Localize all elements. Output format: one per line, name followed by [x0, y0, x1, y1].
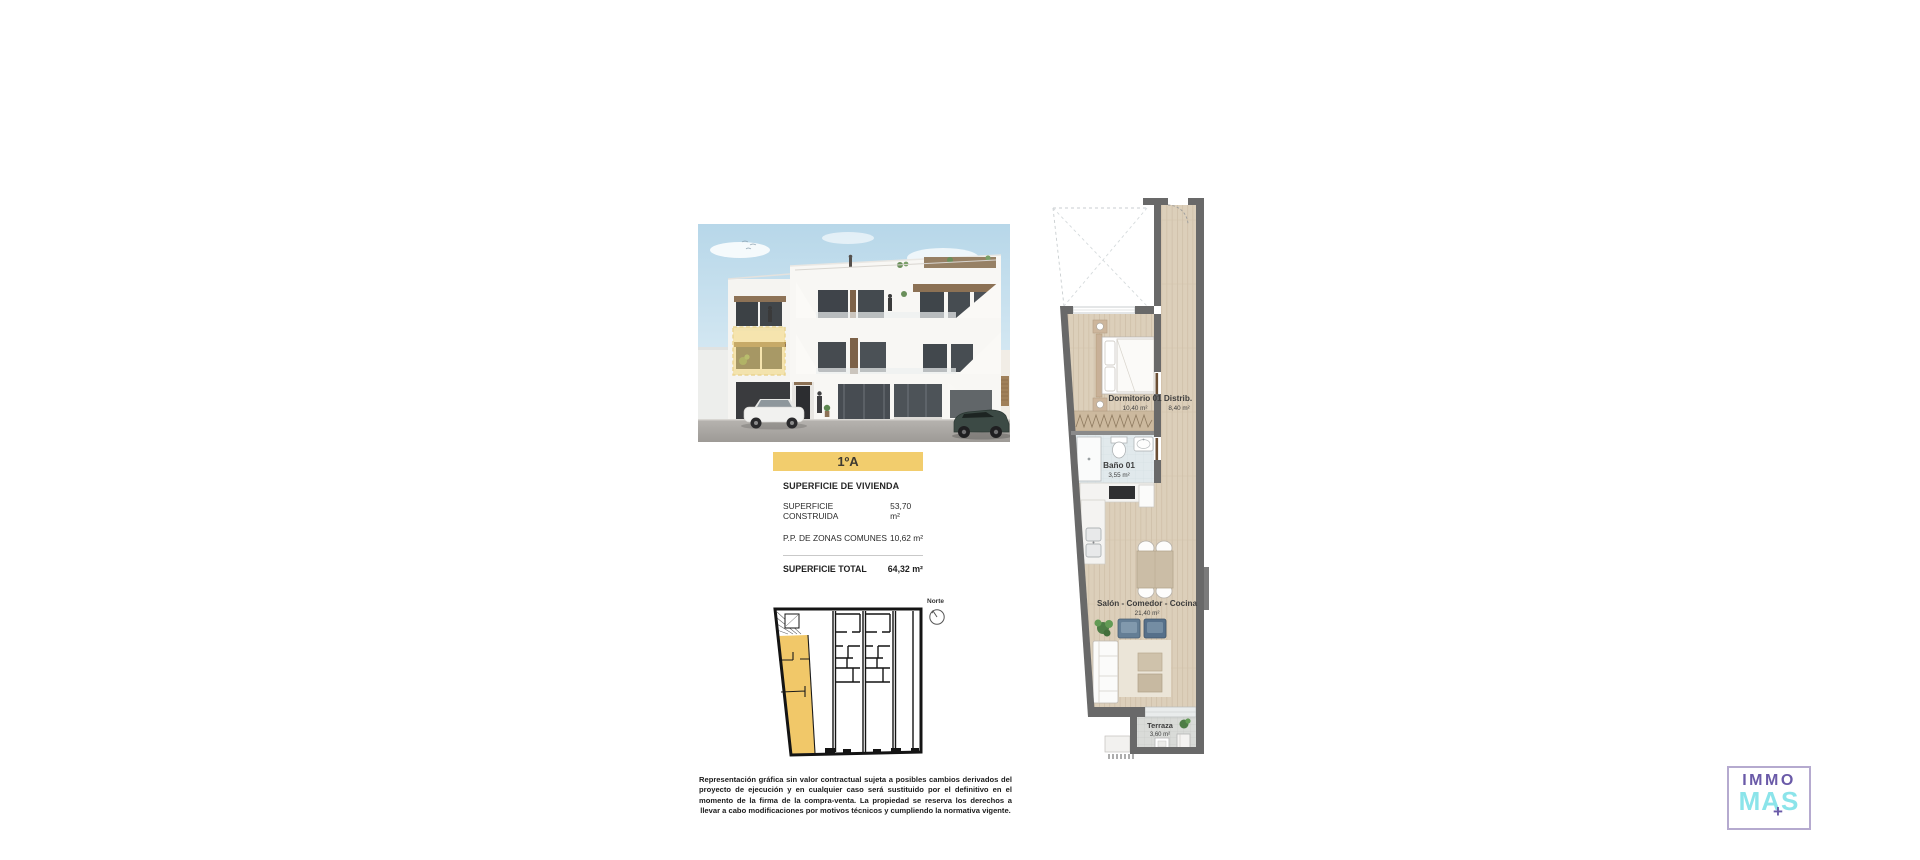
room-label: Distrib.: [1164, 394, 1192, 403]
surface-row-comunes: P.P. DE ZONAS COMUNES 10,62 m²: [783, 533, 923, 543]
surface-row-label: P.P. DE ZONAS COMUNES: [783, 533, 887, 543]
room-label: Salón - Comedor - Cocina: [1097, 599, 1198, 608]
patio-lightwell: [1053, 208, 1147, 306]
legal-disclaimer: Representación gráfica sin valor contrac…: [699, 775, 1012, 816]
surface-total-value: 64,32 m²: [888, 564, 923, 574]
fridge: [1139, 485, 1154, 507]
dark-car: [952, 410, 1010, 440]
person-at-entrance: [817, 396, 822, 413]
cooktop: [1109, 486, 1135, 499]
bedroom-door: [1156, 373, 1159, 394]
room-area: 3,60 m²: [1150, 732, 1170, 738]
building-photo: [698, 224, 1010, 442]
surface-total-row: SUPERFICIE TOTAL 64,32 m²: [783, 564, 923, 574]
site-key-plan: [773, 602, 923, 764]
room-label: Terraza: [1147, 721, 1174, 730]
logo-plus-icon: +: [1773, 802, 1783, 822]
surface-row-label: SUPERFICIE CONSTRUIDA: [783, 501, 890, 521]
surface-row-value: 10,62 m²: [890, 533, 923, 543]
surface-table: SUPERFICIE DE VIVIENDA SUPERFICIE CONSTR…: [783, 481, 923, 586]
roof-pergola: [924, 257, 996, 268]
terrace-chair: [1177, 734, 1190, 749]
corridor-floor: [1161, 205, 1196, 483]
room-area: 21,40 m²: [1135, 610, 1160, 617]
immomas-logo: IMMO MAS +: [1727, 766, 1811, 830]
bathroom-door: [1156, 438, 1159, 460]
room-area: 8,40 m²: [1168, 405, 1189, 412]
sink: [1134, 437, 1153, 451]
room-area: 3,55 m²: [1108, 472, 1129, 479]
highlight-unit-box: [733, 327, 785, 375]
logo-bottom-text: MAS: [1729, 788, 1809, 814]
surface-row-value: 53,70 m²: [890, 501, 923, 521]
surface-total-label: SUPERFICIE TOTAL: [783, 564, 867, 574]
room-label: Dormitorio 01: [1108, 394, 1162, 403]
left-neighbour-wall: [698, 349, 728, 420]
room-label: Baño 01: [1103, 461, 1135, 470]
apartment-floorplan: Dormitorio 01 10,40 m² Distrib. 8,40 m² …: [1047, 198, 1219, 760]
person-on-roof: [849, 258, 852, 267]
sofa: [1093, 641, 1118, 703]
room-area: 10,40 m²: [1123, 405, 1148, 412]
north-label: Norte: [927, 598, 944, 605]
divider: [783, 555, 923, 556]
surface-row-construida: SUPERFICIE CONSTRUIDA 53,70 m²: [783, 501, 923, 521]
unit-label: 1ºA: [773, 452, 923, 471]
compass-icon: [927, 606, 947, 626]
brochure-page: 1ºA SUPERFICIE DE VIVIENDA SUPERFICIE CO…: [0, 0, 1920, 860]
north-indicator: Norte: [927, 598, 967, 626]
surface-title: SUPERFICIE DE VIVIENDA: [783, 481, 923, 491]
